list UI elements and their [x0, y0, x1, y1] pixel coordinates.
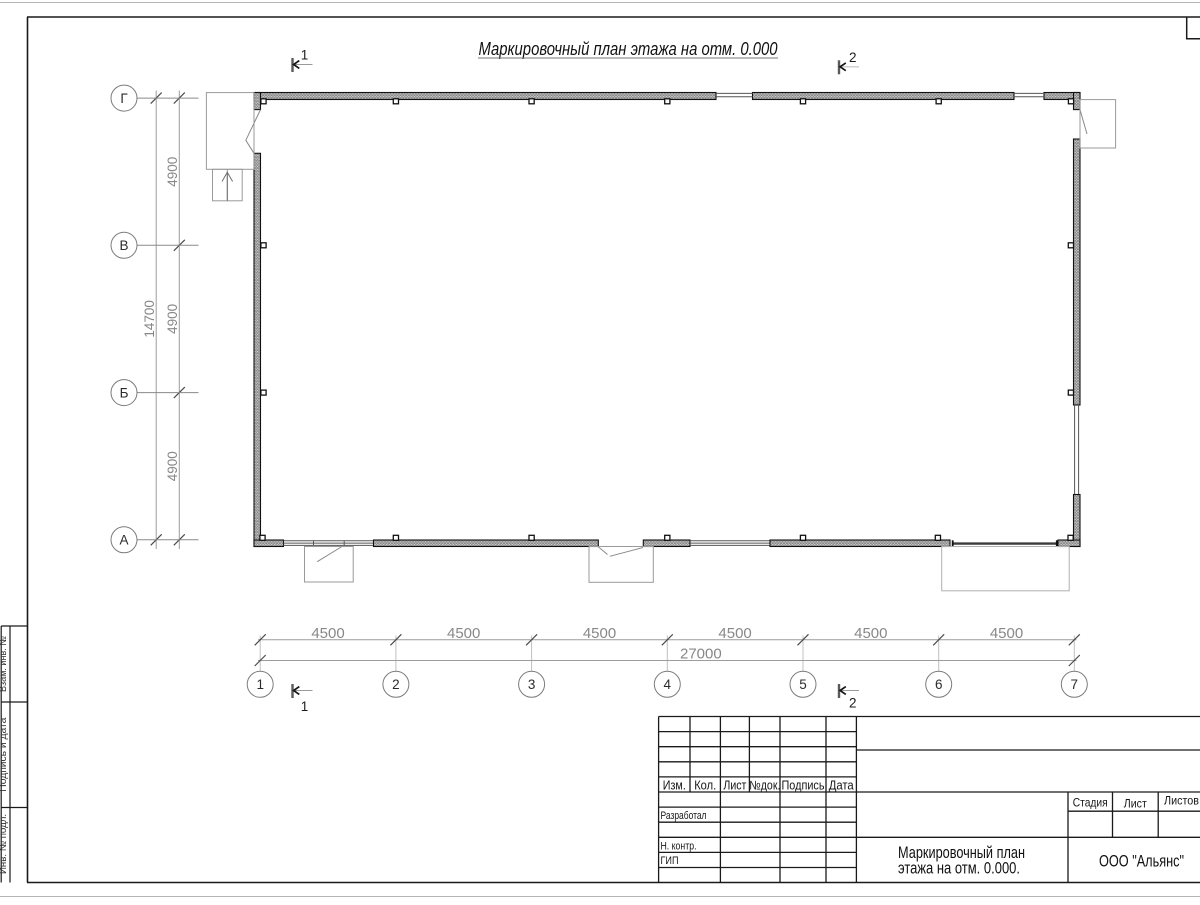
- svg-text:4900: 4900: [165, 157, 180, 187]
- svg-text:Б: Б: [120, 385, 129, 400]
- svg-text:14700: 14700: [142, 300, 157, 338]
- svg-text:2: 2: [849, 696, 857, 711]
- svg-text:2: 2: [392, 677, 400, 692]
- svg-text:Кол.: Кол.: [694, 779, 716, 793]
- svg-text:4500: 4500: [990, 625, 1023, 642]
- svg-text:1: 1: [301, 699, 309, 714]
- svg-text:Лист: Лист: [723, 779, 746, 793]
- svg-text:7: 7: [1071, 677, 1079, 692]
- svg-text:2: 2: [849, 50, 857, 65]
- svg-text:3: 3: [528, 677, 536, 692]
- svg-text:4900: 4900: [165, 304, 180, 334]
- svg-text:этажа на отм. 0.000.: этажа на отм. 0.000.: [898, 860, 1020, 878]
- svg-text:Дата: Дата: [829, 779, 854, 793]
- svg-text:4500: 4500: [718, 625, 751, 642]
- svg-text:6: 6: [935, 677, 943, 692]
- svg-text:27000: 27000: [680, 646, 722, 663]
- svg-text:5: 5: [799, 677, 807, 692]
- svg-text:ГИП: ГИП: [661, 855, 679, 867]
- svg-text:Изм.: Изм.: [663, 779, 686, 793]
- svg-text:Подпись: Подпись: [782, 779, 825, 793]
- svg-text:Н. контр.: Н. контр.: [661, 841, 697, 853]
- svg-text:4500: 4500: [447, 625, 480, 642]
- svg-text:Стадия: Стадия: [1073, 796, 1108, 810]
- svg-text:4500: 4500: [854, 625, 887, 642]
- svg-text:4500: 4500: [311, 625, 344, 642]
- svg-text:№док.: №док.: [749, 779, 780, 793]
- svg-text:Подпись и дата: Подпись и дата: [0, 717, 9, 792]
- svg-text:Листов: Листов: [1164, 794, 1199, 808]
- svg-text:Взам. инв. №: Взам. инв. №: [0, 636, 9, 692]
- svg-text:Разработал: Разработал: [661, 810, 707, 822]
- svg-text:4900: 4900: [165, 451, 180, 481]
- svg-text:4500: 4500: [583, 625, 616, 642]
- svg-text:ООО "Альянс": ООО "Альянс": [1099, 853, 1184, 871]
- svg-text:А: А: [119, 533, 128, 548]
- svg-text:Маркировочный план этажа на от: Маркировочный план этажа на отм. 0.000: [479, 38, 779, 59]
- svg-text:Инв. № подл.: Инв. № подл.: [0, 814, 9, 874]
- svg-text:Г: Г: [120, 91, 128, 106]
- svg-text:4: 4: [664, 677, 672, 692]
- svg-text:Лист: Лист: [1124, 797, 1147, 811]
- svg-text:1: 1: [256, 677, 264, 692]
- svg-text:1: 1: [301, 48, 309, 63]
- svg-text:В: В: [119, 238, 128, 253]
